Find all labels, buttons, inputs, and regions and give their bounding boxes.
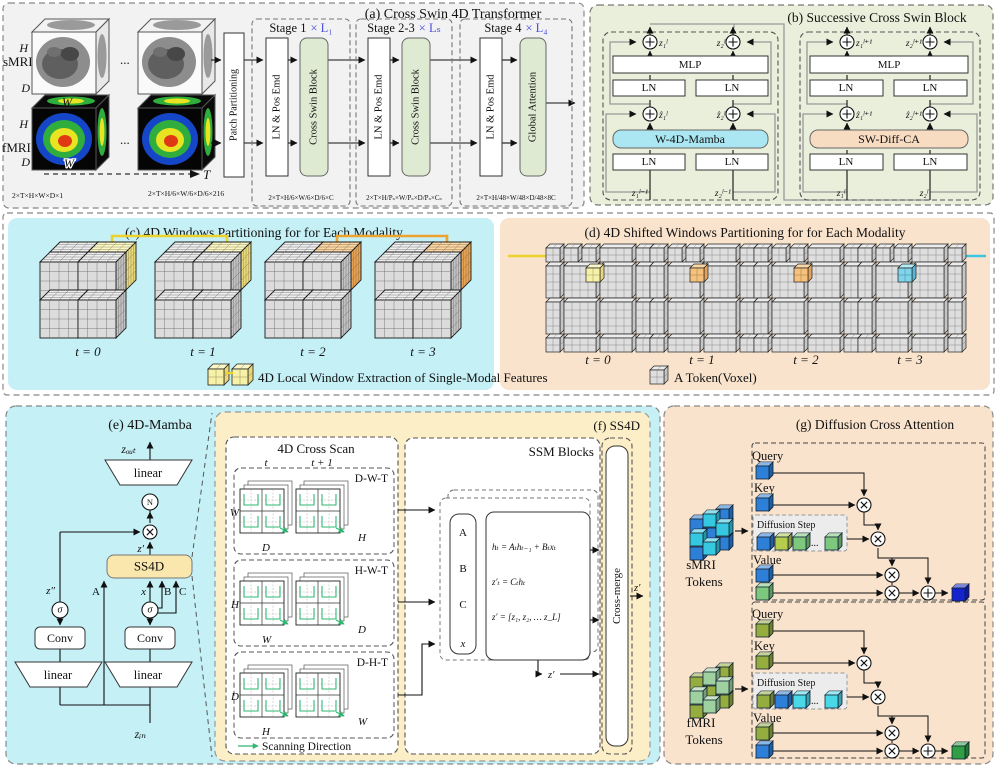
smri-label: sMRI <box>3 54 33 69</box>
ln-label: LN <box>725 82 740 94</box>
conv-label: Conv <box>137 631 163 645</box>
key-label: Key <box>754 481 776 495</box>
stage-1-ln-label: LN & Pos Emd <box>272 74 283 140</box>
ssm-eq1: hₜ = Aₜhₜ₋₁ + Bₜxₜ <box>492 542 557 552</box>
scan-name: D-W-T <box>355 473 388 485</box>
z-out2: z₂ˡ <box>716 39 726 49</box>
ssm-c: C <box>459 599 466 611</box>
ssm-x: x <box>460 638 466 650</box>
ssm-blocks-panel: SSM Blocks A B C x hₜ = Aₜhₜ₋₁ + Bₜxₜ z′… <box>398 438 600 754</box>
z-in1: z₁ˡ <box>836 189 846 199</box>
z-mid2: ẑ₂ˡ⁺¹ <box>905 111 922 121</box>
window-cluster-t0 <box>40 242 136 338</box>
stage-4-ln-label: LN & Pos Emd <box>486 74 497 140</box>
dim-patch: 2×T×H/6×W/6×D/6×216 <box>148 189 224 198</box>
mlp-label: MLP <box>878 59 901 71</box>
z-out-label: zₒᵤₜ <box>120 442 136 456</box>
mamba-core-label: W-4D-Mamba <box>655 132 726 146</box>
stage-4-block-label: Global Attention <box>528 71 539 142</box>
ln-label: LN <box>642 156 657 168</box>
diffusion-step-box: Diffusion Step ... <box>753 515 847 551</box>
scan-axis-left: W <box>230 507 240 519</box>
window-cluster-t1 <box>155 242 251 338</box>
query-label: Query <box>752 449 784 463</box>
multiply-icon <box>885 744 899 758</box>
legend-window-text: 4D Local Window Extraction of Single-Mod… <box>258 370 548 385</box>
stage-2-3-block-label: Cross Swin Block <box>411 68 422 145</box>
add-icon <box>726 35 740 49</box>
add-icon <box>643 35 657 49</box>
legend-token-icon <box>650 366 668 384</box>
multiply-icon <box>857 656 871 670</box>
linear-top-label: linear <box>134 466 163 480</box>
panel-a: (a) Cross Swin 4D Transformer sMRI fMRI … <box>2 2 586 210</box>
axis-w-smri: W <box>62 95 73 109</box>
window-cluster-t3 <box>375 242 471 338</box>
cross-merge-label: Cross-merge <box>611 568 623 624</box>
shifted-cluster-t3 <box>858 244 966 352</box>
add-icon <box>923 107 937 121</box>
patch-partitioning-label: Patch Partitioning <box>229 69 240 141</box>
ln-label: LN <box>923 82 938 94</box>
panel-b-title: (b) Successive Cross Swin Block <box>787 10 966 25</box>
multiply-icon <box>143 525 157 539</box>
fmri-dots: ... <box>120 132 130 147</box>
z-in1: z₁ˡ⁻¹ <box>631 189 648 199</box>
ssm-title: SSM Blocks <box>529 444 594 459</box>
scan-axis-right: W <box>358 716 368 728</box>
smri-dots: ... <box>120 52 130 67</box>
multiply-icon <box>857 498 871 512</box>
d-t3-label: t = 3 <box>897 352 923 367</box>
input-c-label: C <box>179 586 186 598</box>
add-icon <box>921 586 935 600</box>
norm-label: N <box>147 497 153 507</box>
z-out1: z₁ˡ <box>658 39 668 49</box>
diffusion-step-label: Diffusion Step <box>757 520 815 531</box>
panel-g: (g) Diffusion Cross Attention sMRI Token… <box>661 405 995 766</box>
ln-label: LN <box>642 82 657 94</box>
panel-g-title: (g) Diffusion Cross Attention <box>796 417 955 432</box>
query-label: Query <box>752 607 784 621</box>
panel-cd: (c) 4D Windows Partitioning for for Each… <box>2 212 995 396</box>
z-in2: z₂ˡ <box>919 189 929 199</box>
diffca-core-label: SW-Diff-CA <box>858 132 920 146</box>
smri-volume-2 <box>138 19 215 94</box>
diffusion-step-label: Diffusion Step <box>757 678 815 689</box>
add-icon <box>923 35 937 49</box>
smri-tokens-label1: sMRI <box>686 557 716 572</box>
ssm-eq3: z′ = [z₁, z₂, … z_L] <box>491 612 561 622</box>
legend-token-text: A Token(Voxel) <box>674 370 757 385</box>
scan-axis-right: D <box>357 624 366 636</box>
shifted-cluster-t2 <box>754 244 862 352</box>
z-mid2: ẑ₂ˡ <box>716 111 726 121</box>
multiply-icon <box>885 586 899 600</box>
panel-f: (f) SS4D 4D Cross Scan t t + 1 D-W-T W D… <box>212 410 653 764</box>
ln-label: LN <box>923 156 938 168</box>
stage-2-3-ln-label: LN & Pos Emd <box>374 74 385 140</box>
input-a-label: A <box>92 586 100 598</box>
multiply-icon <box>871 690 885 704</box>
axis-w-fmri: W <box>64 156 75 170</box>
axis-d-fmri: D <box>20 155 30 169</box>
fmri-tokens-label2: Tokens <box>685 732 722 747</box>
linear-left-label: linear <box>44 668 73 682</box>
panel-f-title: (f) SS4D <box>593 418 640 433</box>
add-icon <box>921 744 935 758</box>
diffusion-dots: ... <box>811 696 819 707</box>
scan-axis-bottom: D <box>261 542 270 554</box>
z-mid1: ẑ₁ˡ <box>658 111 668 121</box>
shifted-cluster-t1 <box>650 244 758 352</box>
ssm-z-prime: z′ <box>547 670 555 681</box>
d-t2-label: t = 2 <box>793 352 819 367</box>
add-icon <box>643 107 657 121</box>
fmri-label: fMRI <box>2 140 31 155</box>
input-b-label: B <box>164 586 171 598</box>
diffusion-dots: ... <box>811 538 819 549</box>
linear-right-label: linear <box>134 668 163 682</box>
z-out2: z₂ˡ⁺¹ <box>905 39 922 49</box>
fmri-tokens-label1: fMRI <box>687 715 716 730</box>
ss4d-out-label: z′ <box>633 583 641 594</box>
panel-c-title: (c) 4D Windows Partitioning for for Each… <box>125 225 403 240</box>
scan-name: D-H-T <box>357 657 388 669</box>
c-t3-label: t = 3 <box>410 344 436 359</box>
scan-axis-bottom: H <box>261 726 271 738</box>
z-out1: z₁ˡ⁺¹ <box>855 39 872 49</box>
multiply-icon <box>885 568 899 582</box>
time-label: T <box>203 167 211 182</box>
input-x-label: x <box>140 586 146 598</box>
ssm-a: A <box>459 527 467 539</box>
scan-axis-left: H <box>230 599 240 611</box>
c-t2-label: t = 2 <box>300 344 326 359</box>
cross-scan-title: 4D Cross Scan <box>277 441 355 456</box>
cross-scan-panel: 4D Cross Scan t t + 1 D-W-T W D H H-W-T … <box>226 437 398 754</box>
smri-tokens-label2: Tokens <box>685 574 722 589</box>
stage-1-dim: 2×T×H/6×W/6×D/6×C <box>268 194 334 202</box>
stage-2-3-dim: 2×T×H/Pₛ×W/Pₛ×D/Pₛ×Cₛ <box>366 194 442 202</box>
conv-label: Conv <box>47 631 73 645</box>
mlp-label: MLP <box>679 59 702 71</box>
d-t1-label: t = 1 <box>689 352 714 367</box>
scan-axis-right: H <box>357 532 367 544</box>
scan-t1-label: t + 1 <box>311 457 332 469</box>
axis-d-smri: D <box>20 81 30 95</box>
scan-axis-bottom: W <box>262 634 272 646</box>
ss4d-label: SS4D <box>134 559 164 574</box>
z-in-label: zᵢₙ <box>134 727 147 741</box>
stage-2-3-title: Stage 2-3× Lₛ <box>367 21 441 35</box>
add-icon <box>840 107 854 121</box>
d-t0-label: t = 0 <box>585 352 611 367</box>
scan-name: H-W-T <box>355 565 388 577</box>
fmri-volume-2 <box>138 95 215 170</box>
c-t1-label: t = 1 <box>190 344 215 359</box>
add-icon <box>840 35 854 49</box>
multiply-icon <box>871 532 885 546</box>
key-label: Key <box>754 639 776 653</box>
z-prime-label: z′ <box>136 543 144 555</box>
panel-b: (b) Successive Cross Swin Block MLP LN L… <box>588 4 995 206</box>
cross-merge-panel: Cross-merge <box>602 438 632 754</box>
stage-4-dim: 2×T×H/48×W/48×D/48×8C <box>476 194 556 202</box>
panel-a-title: (a) Cross Swin 4D Transformer <box>365 7 542 22</box>
ln-label: LN <box>839 156 854 168</box>
z-in2: z₂ˡ⁻¹ <box>714 189 731 199</box>
stage-1-block-label: Cross Swin Block <box>309 68 320 145</box>
dim-input: 2×T×H×W×D×1 <box>12 191 63 200</box>
scan-axis-left: D <box>230 691 239 703</box>
ln-label: LN <box>725 156 740 168</box>
smri-output-cube <box>952 584 969 601</box>
c-t0-label: t = 0 <box>75 344 101 359</box>
fmri-output-cube <box>952 742 969 759</box>
diffusion-step-box: Diffusion Step ... <box>753 673 847 709</box>
ln-label: LN <box>839 82 854 94</box>
panel-e-title: (e) 4D-Mamba <box>108 418 192 433</box>
z-mid1: ẑ₁ˡ⁺¹ <box>855 111 872 121</box>
shifted-cluster-t0 <box>546 244 654 352</box>
stage-4-title: Stage 4× L₄ <box>484 21 547 35</box>
z-dprime-label: z″ <box>45 585 55 597</box>
smri-volume-1 <box>32 19 109 94</box>
window-cluster-t2 <box>265 242 361 338</box>
axis-h-smri: H <box>18 41 29 55</box>
panel-d-title: (d) 4D Shifted Windows Partitioning for … <box>585 225 906 240</box>
add-icon <box>726 107 740 121</box>
figure-page: (a) Cross Swin 4D Transformer sMRI fMRI … <box>0 0 997 770</box>
ssm-b: B <box>459 563 466 575</box>
scanning-direction-label: Scanning Direction <box>262 741 351 753</box>
patch-partitioning-box: Patch Partitioning <box>224 33 244 177</box>
axis-h-fmri: H <box>18 117 29 131</box>
ssm-eq2: z′ₜ = Cₜhₜ <box>491 577 526 587</box>
multiply-icon <box>885 726 899 740</box>
stage-1-title: Stage 1× L₁ <box>269 21 332 35</box>
